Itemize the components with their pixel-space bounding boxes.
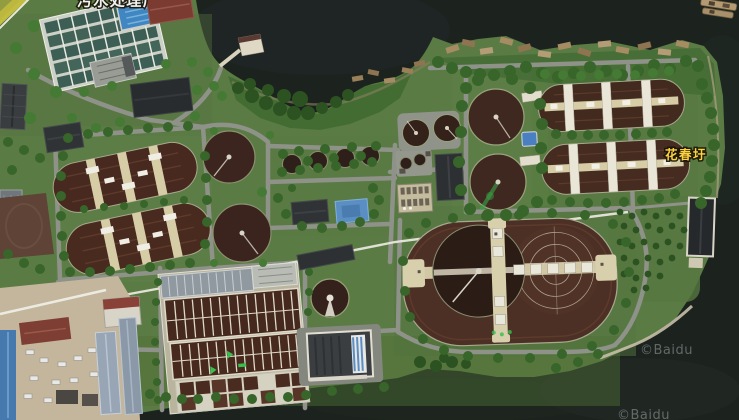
place-label-huachunwei: 花春圩 [665, 147, 707, 162]
bottom-clarifier [311, 279, 349, 317]
equipment-facility [397, 183, 432, 213]
baidu-watermark-mid: ©Baidu [640, 343, 693, 358]
left-clarifier-upper [203, 131, 255, 183]
industrial-yard [0, 276, 142, 420]
right-clarifier-lower [470, 154, 526, 210]
right-clarifier-upper [468, 89, 524, 145]
dark-building-c [130, 77, 193, 117]
map-viewport: 污水处理厂 花春圩 ©Baidu ©Baidu [0, 0, 739, 420]
left-clarifier-lower [213, 204, 271, 262]
small-tank-pad [395, 149, 432, 177]
stadium-clarifier-complex [401, 214, 619, 347]
right-ditch-upper [537, 78, 685, 133]
baidu-watermark-bottom: ©Baidu [617, 408, 670, 420]
admin-dark-building [291, 199, 329, 224]
map-canvas[interactable]: 污水处理厂 花春圩 ©Baidu ©Baidu [0, 0, 739, 420]
dark-building-a [0, 83, 27, 129]
blue-tent-structure [522, 132, 538, 147]
place-label-top-cutoff: 污水处理厂 [77, 0, 160, 10]
left-edge-buildings [0, 190, 54, 259]
medium-clarifier-pair [397, 110, 461, 151]
aeration-basin-complex [158, 262, 310, 414]
sludge-facility [296, 324, 383, 386]
